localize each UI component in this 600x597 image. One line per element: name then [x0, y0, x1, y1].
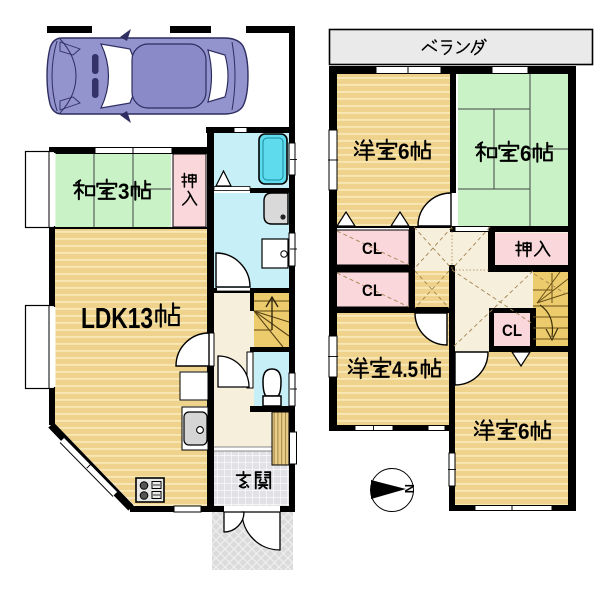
svg-text:3: 3: [118, 179, 130, 204]
svg-text:N: N: [402, 484, 417, 493]
svg-text:6: 6: [518, 419, 530, 444]
svg-text:6: 6: [398, 139, 410, 164]
svg-text:4.5: 4.5: [392, 357, 418, 382]
svg-text:6: 6: [520, 141, 532, 166]
svg-text:CL: CL: [502, 321, 522, 340]
svg-text:LDK13: LDK13: [81, 303, 153, 335]
svg-text:CL: CL: [362, 239, 382, 258]
svg-text:CL: CL: [362, 281, 382, 300]
